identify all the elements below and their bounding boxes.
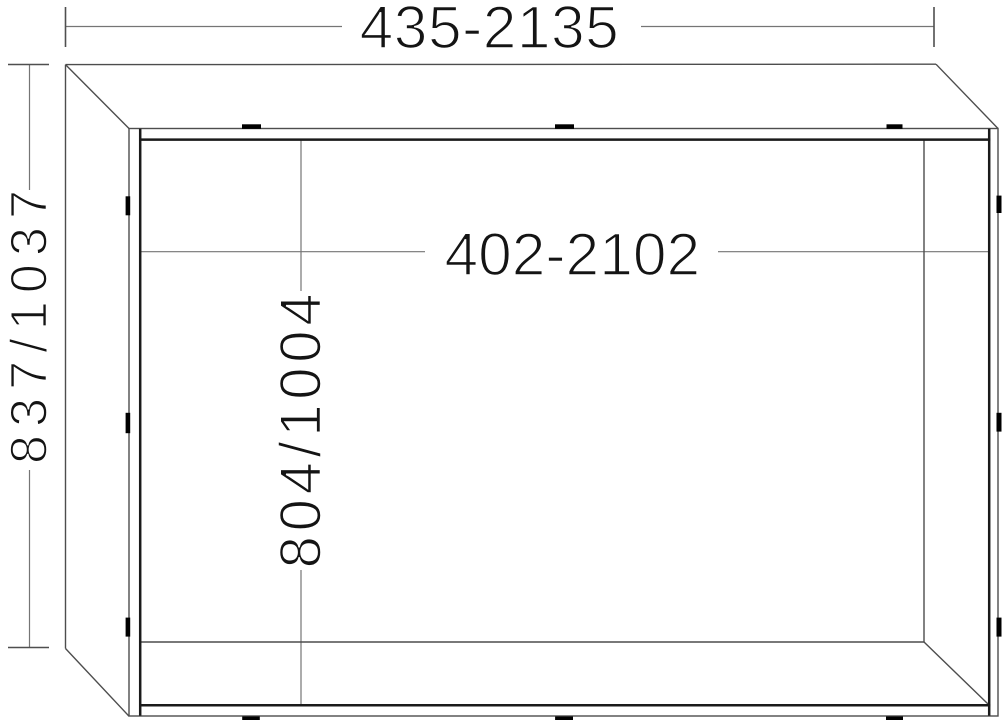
svg-text:804/1004: 804/1004 [269,289,334,569]
svg-text:402-2102: 402-2102 [444,220,700,288]
svg-text:435-2135: 435-2135 [360,0,620,61]
svg-text:837/1037: 837/1037 [0,182,58,464]
